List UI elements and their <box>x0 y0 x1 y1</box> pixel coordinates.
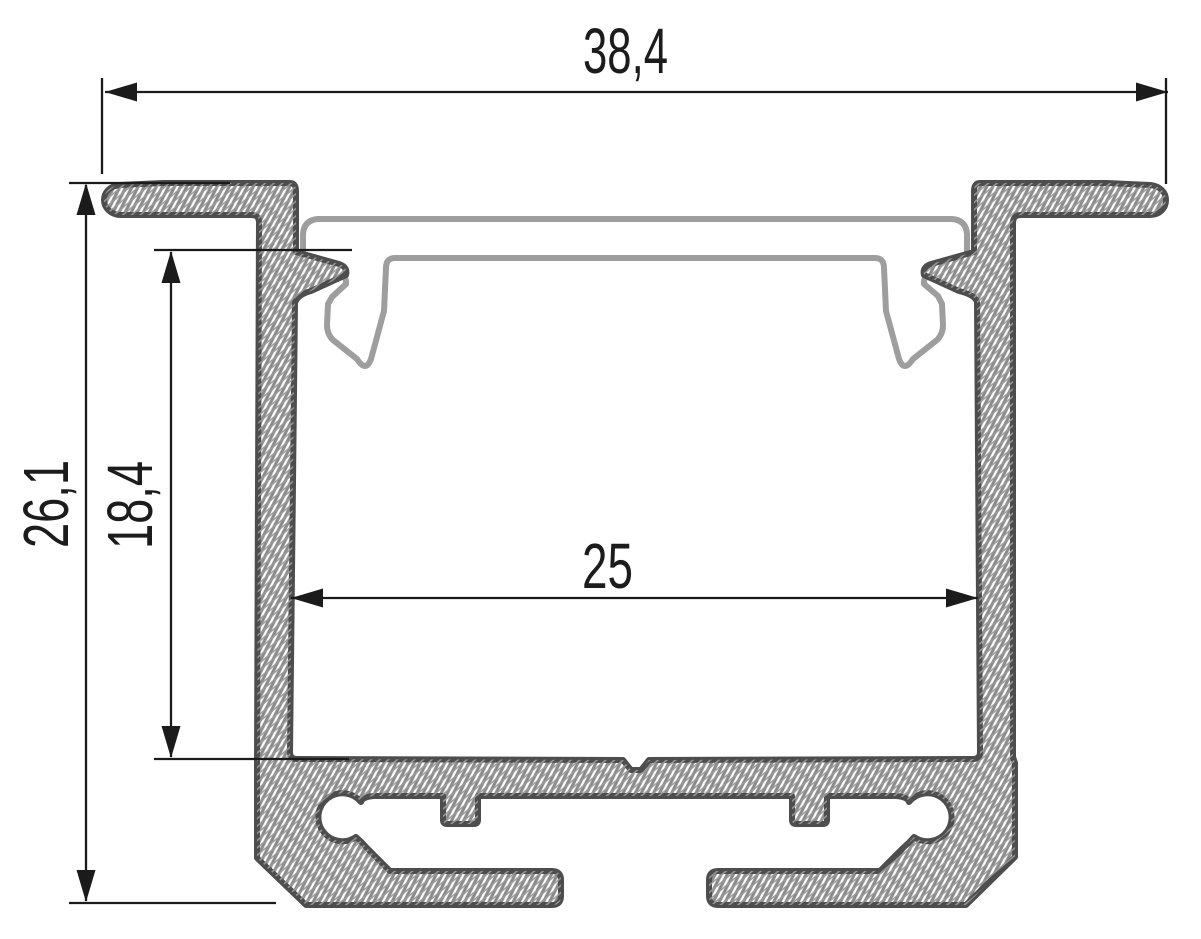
svg-text:26,1: 26,1 <box>10 460 82 548</box>
svg-text:38,4: 38,4 <box>583 15 668 87</box>
svg-text:25: 25 <box>582 530 633 602</box>
svg-text:18,4: 18,4 <box>94 461 166 549</box>
